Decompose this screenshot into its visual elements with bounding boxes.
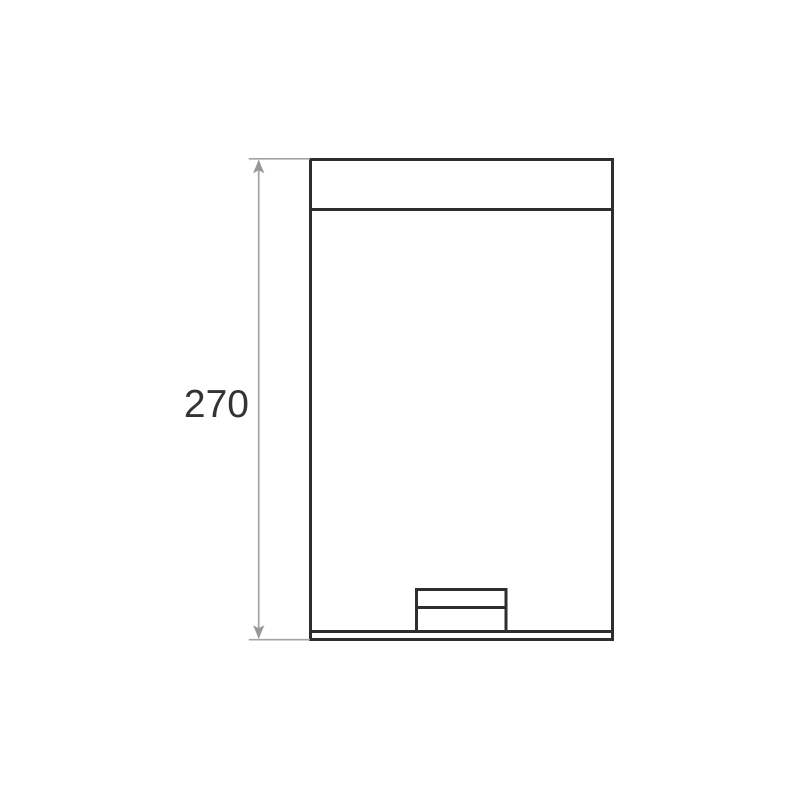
svg-text:270: 270 [184, 383, 249, 426]
